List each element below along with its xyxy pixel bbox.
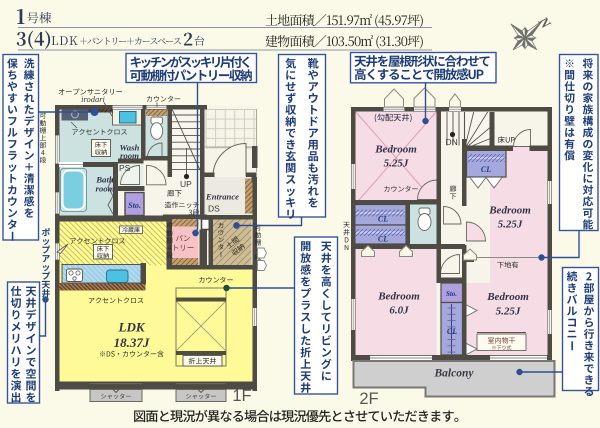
svg-text:1F: 1F [232,387,251,405]
svg-text:DN: DN [446,137,458,147]
svg-text:room: room [120,151,139,161]
svg-text:5.25J: 5.25J [384,158,409,170]
svg-text:Entrance: Entrance [205,192,239,202]
svg-text:room: room [95,184,114,194]
svg-text:irodari: irodari [81,94,105,104]
svg-text:Balcony: Balcony [434,368,475,380]
svg-text:6.0J: 6.0J [389,305,409,317]
svg-text:5.25J: 5.25J [496,306,521,318]
svg-text:PS: PS [119,163,131,173]
svg-text:Bedroom: Bedroom [377,291,420,303]
svg-text:Bedroom: Bedroom [488,205,531,217]
svg-text:UP: UP [180,179,192,189]
svg-text:CL: CL [447,327,457,336]
svg-text:Sto.: Sto. [446,290,457,298]
svg-text:CL: CL [378,235,388,244]
svg-text:Bedroom: Bedroom [486,291,529,303]
svg-text:LDK: LDK [118,320,146,335]
svg-text:2F: 2F [359,390,378,408]
svg-text:18.37J: 18.37J [114,335,150,350]
svg-text:CL: CL [481,165,491,174]
svg-text:DS: DS [208,204,220,214]
svg-text:5.25J: 5.25J [498,219,523,231]
svg-text:Bedroom: Bedroom [374,144,417,156]
svg-text:CL: CL [378,215,388,224]
svg-text:Sto.: Sto. [128,201,141,210]
